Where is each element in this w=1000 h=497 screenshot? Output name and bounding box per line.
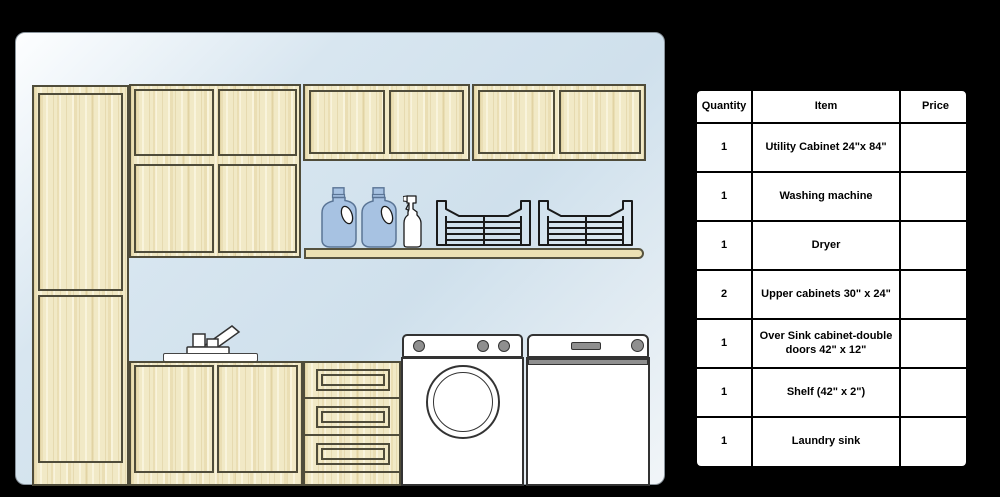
- drawer-divider: [305, 397, 399, 399]
- cell-quantity[interactable]: 1: [697, 319, 752, 368]
- cabinet-door: [134, 89, 214, 156]
- drawer-divider: [305, 471, 399, 473]
- laundry-basket[interactable]: [538, 197, 634, 247]
- cell-quantity[interactable]: 1: [697, 123, 752, 172]
- utility-cabinet[interactable]: [32, 85, 129, 486]
- table-row: 1Washing machine: [697, 172, 968, 221]
- faucet-handle: [193, 334, 205, 347]
- cell-quantity[interactable]: 1: [697, 221, 752, 270]
- drawer-front: [316, 406, 390, 428]
- cell-price[interactable]: [900, 221, 968, 270]
- over-sink-cabinet[interactable]: [303, 84, 470, 161]
- cell-price[interactable]: [900, 172, 968, 221]
- washing-machine[interactable]: [401, 334, 524, 486]
- table-row: 1Over Sink cabinet-double doors 42" x 12…: [697, 319, 968, 368]
- cell-item[interactable]: Utility Cabinet 24"x 84": [752, 123, 900, 172]
- laundry-sink-faucet[interactable]: [184, 321, 254, 356]
- table-row: 1Laundry sink: [697, 417, 968, 466]
- spray-nozzle: [403, 196, 407, 202]
- detergent-jug[interactable]: [360, 187, 398, 248]
- drawer-cabinet[interactable]: [303, 361, 401, 486]
- cell-price[interactable]: [900, 123, 968, 172]
- table-row: 2Upper cabinets 30" x 24": [697, 270, 968, 319]
- page-background: { "colors": { "page_bg": "#000000", "can…: [0, 0, 1000, 497]
- cell-quantity[interactable]: 1: [697, 417, 752, 466]
- cabinet-door: [38, 93, 123, 291]
- dryer-knob: [631, 339, 644, 352]
- upper-cabinet-right[interactable]: [472, 84, 646, 161]
- cabinet-door: [217, 365, 298, 473]
- cabinet-door: [134, 164, 214, 253]
- cell-item[interactable]: Upper cabinets 30" x 24": [752, 270, 900, 319]
- dryer-body: [526, 357, 650, 486]
- cabinet-door: [218, 89, 297, 156]
- cell-quantity[interactable]: 2: [697, 270, 752, 319]
- detergent-jug[interactable]: [320, 187, 358, 248]
- cell-price[interactable]: [900, 417, 968, 466]
- cell-item[interactable]: Dryer: [752, 221, 900, 270]
- drawer-front: [316, 443, 390, 465]
- dryer[interactable]: [526, 334, 650, 486]
- table-body: 1Utility Cabinet 24"x 84"1Washing machin…: [697, 123, 968, 466]
- cell-item[interactable]: Over Sink cabinet-double doors 42" x 12": [752, 319, 900, 368]
- table-row: 1Dryer: [697, 221, 968, 270]
- wall-shelf[interactable]: [304, 248, 644, 259]
- cell-quantity[interactable]: 1: [697, 368, 752, 417]
- sink-base-cabinet[interactable]: [129, 361, 303, 486]
- washer-knob: [413, 340, 425, 352]
- drawer-panel: [321, 374, 385, 386]
- dryer-display-slot: [571, 342, 601, 350]
- table-header-row: Quantity Item Price: [697, 91, 968, 123]
- cabinet-door: [389, 90, 464, 154]
- laundry-basket[interactable]: [436, 197, 532, 247]
- header-item[interactable]: Item: [752, 91, 900, 123]
- drawer-panel: [321, 448, 385, 460]
- cabinet-door: [559, 90, 641, 154]
- upper-cabinet-grid[interactable]: [129, 84, 301, 258]
- cabinet-door: [218, 164, 297, 253]
- drawer-front: [316, 369, 390, 391]
- cell-quantity[interactable]: 1: [697, 172, 752, 221]
- drawer-panel: [321, 411, 385, 423]
- cell-price[interactable]: [900, 270, 968, 319]
- header-price[interactable]: Price: [900, 91, 968, 123]
- design-canvas[interactable]: [15, 32, 665, 485]
- washer-knob: [477, 340, 489, 352]
- drawer-divider: [305, 434, 399, 436]
- cabinet-door: [478, 90, 555, 154]
- washer-knob: [498, 340, 510, 352]
- header-quantity[interactable]: Quantity: [697, 91, 752, 123]
- dryer-trim-strip: [528, 359, 648, 365]
- cabinet-door: [38, 295, 123, 463]
- cabinet-door: [309, 90, 385, 154]
- cell-item[interactable]: Laundry sink: [752, 417, 900, 466]
- cabinet-door: [134, 365, 214, 473]
- cell-price[interactable]: [900, 368, 968, 417]
- table-row: 1Utility Cabinet 24"x 84": [697, 123, 968, 172]
- washer-door-glass: [433, 372, 493, 432]
- parts-list-table[interactable]: Quantity Item Price 1Utility Cabinet 24"…: [695, 89, 968, 468]
- cell-price[interactable]: [900, 319, 968, 368]
- cell-item[interactable]: Shelf (42" x 2"): [752, 368, 900, 417]
- cell-item[interactable]: Washing machine: [752, 172, 900, 221]
- table-row: 1Shelf (42" x 2"): [697, 368, 968, 417]
- spray-bottle[interactable]: [403, 195, 422, 248]
